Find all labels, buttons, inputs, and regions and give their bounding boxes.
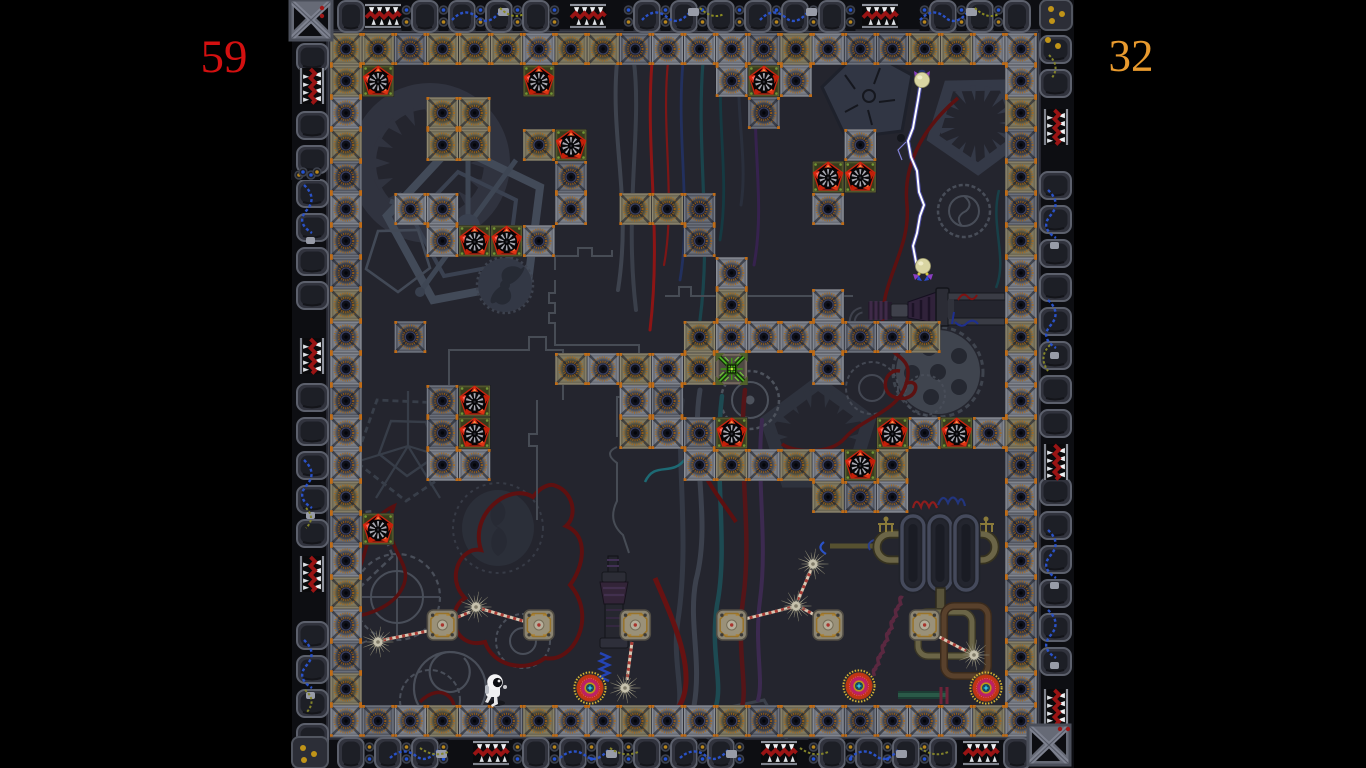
svg-text:59: 59: [201, 31, 248, 83]
svg-text:32: 32: [1109, 31, 1154, 81]
